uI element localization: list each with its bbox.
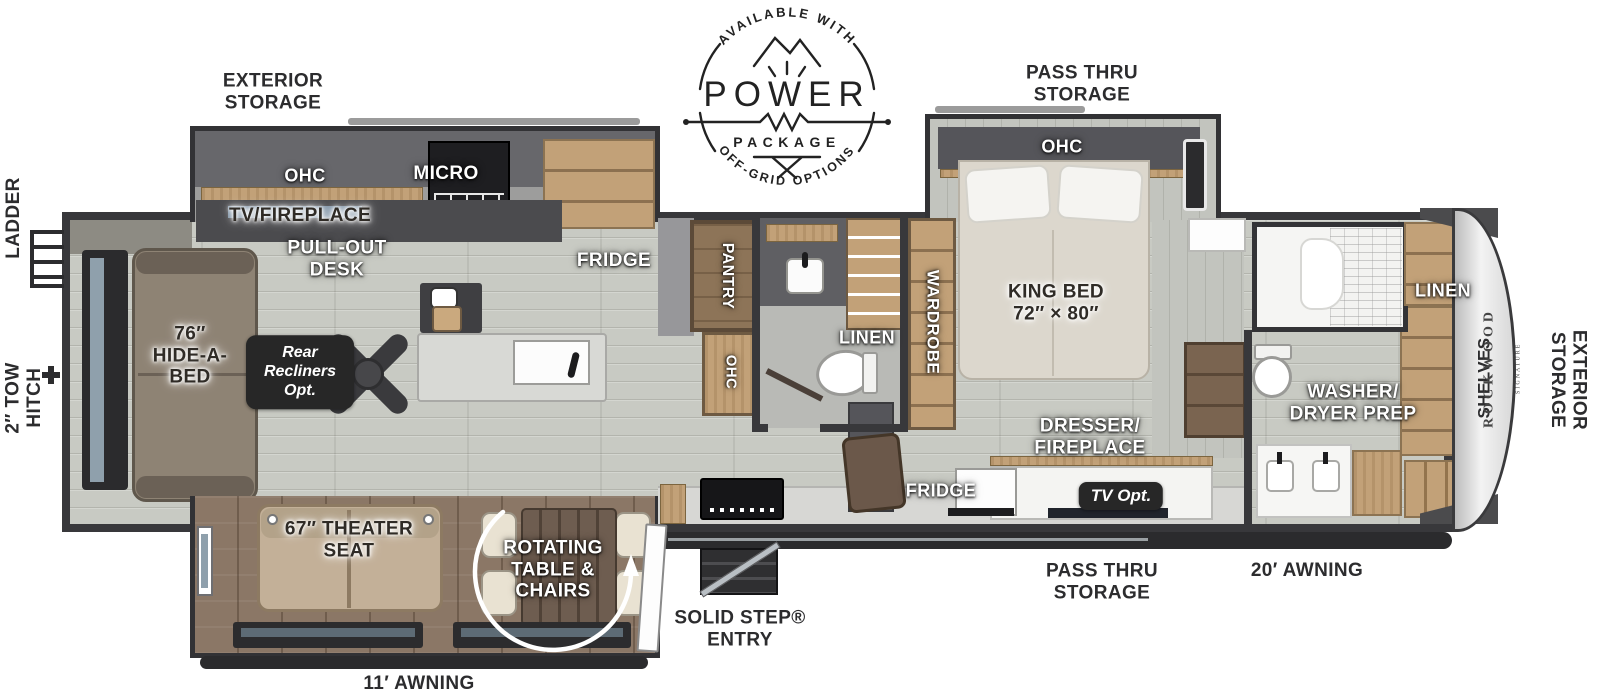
door-threshold-shelf	[660, 484, 686, 524]
label-theater-seat: 67″ THEATER SEAT	[285, 518, 413, 561]
label-tv-fireplace: TV/FIREPLACE	[229, 205, 371, 227]
entertainment-fridge-base	[948, 508, 1014, 516]
divider-dot-left	[683, 119, 689, 125]
mid-linen-closet	[846, 218, 902, 330]
bed-pillow-left	[964, 164, 1052, 224]
label-exterior-storage-front: EXTERIOR STORAGE	[1546, 330, 1589, 430]
sofa-armrest-top	[136, 252, 254, 274]
label-pass-thru-storage-top: PASS THRU STORAGE	[1026, 62, 1138, 105]
label-awning-11ft: 11′ AWNING	[363, 673, 474, 695]
sun-rays-icon	[769, 62, 805, 76]
label-solid-step-entry: SOLID STEP® ENTRY	[674, 607, 805, 650]
tow-hitch-icon-vertical	[48, 366, 54, 384]
label-rotating-table: ROTATING TABLE & CHAIRS	[503, 538, 603, 603]
mid-bath-wall-bottom-left	[752, 424, 768, 432]
ladder-icon	[30, 230, 64, 288]
floorplan-canvas: AVAILABLE WITH POWER PACKAGE OFF-GRID OP…	[0, 0, 1600, 698]
label-exterior-storage-top: EXTERIOR STORAGE	[223, 70, 323, 113]
label-hide-a-bed: 76″ HIDE-A- BED	[153, 324, 228, 389]
label-ladder: LADDER	[3, 177, 25, 259]
fan-hub	[352, 358, 384, 390]
label-ohc-bedroom: OHC	[1041, 137, 1082, 158]
hall-chair	[841, 432, 907, 514]
bedroom-upper-cabinet	[1188, 218, 1246, 252]
label-linen-front: LINEN	[1415, 281, 1471, 302]
logo-arc-lower-left	[700, 113, 715, 151]
bedroom-wardrobe-cabinet	[1184, 342, 1246, 438]
label-king-bed: KING BED 72″ × 80″	[1008, 281, 1104, 324]
logo-power-text: POWER	[703, 75, 870, 114]
rear-recliners-badge: Rear Recliners Opt.	[246, 335, 354, 409]
rockwood-brand-series: SIGNATURE	[1516, 308, 1523, 428]
island-sink	[513, 340, 590, 385]
label-wardrobe: WARDROBE	[923, 270, 942, 374]
label-dresser-fireplace: DRESSER/ FIREPLACE	[1034, 415, 1145, 458]
shower-bench	[1300, 238, 1344, 310]
label-pass-thru-storage-bottom: PASS THRU STORAGE	[1046, 560, 1158, 603]
desk-chair	[432, 306, 462, 332]
label-tow-hitch: 2″ TOW HITCH	[2, 362, 45, 433]
label-micro: MICRO	[413, 163, 478, 185]
bed-slide-window	[1183, 139, 1207, 211]
bed-pillow-right	[1056, 164, 1144, 224]
awning-20ft-highlight	[668, 538, 1148, 541]
rockwood-brand: ROCKWOOD SIGNATURE	[1463, 308, 1540, 428]
label-fridge: FRIDGE	[577, 250, 651, 272]
mid-bath-toilet-tank	[862, 352, 878, 394]
vanity-sink-right	[1312, 460, 1340, 492]
rear-window	[82, 250, 128, 490]
front-toilet-bowl	[1252, 356, 1292, 398]
slide-window-left-glass	[201, 534, 208, 588]
sofa-armrest-bottom	[136, 476, 254, 498]
vanity-wood-platform	[1352, 450, 1402, 516]
mid-bath-wall-bottom-right	[820, 424, 908, 432]
svg-text:AVAILABLE WITH: AVAILABLE WITH	[715, 4, 860, 47]
divider-dot-right	[885, 119, 891, 125]
label-pantry: PANTRY	[718, 243, 736, 309]
label-ohc-hall: OHC	[722, 355, 739, 390]
vanity-faucet-left	[1277, 452, 1282, 464]
bed-slide-topper	[935, 106, 1085, 113]
cupholder-left	[267, 514, 278, 525]
vanity-faucet-right	[1323, 452, 1328, 464]
mid-bath-shelf	[766, 224, 838, 242]
logo-divider-line	[686, 114, 888, 130]
label-awning-20ft: 20′ AWNING	[1251, 560, 1363, 582]
tv-opt-badge: TV Opt.	[1079, 482, 1163, 510]
rear-window-glass	[90, 258, 104, 482]
label-fridge-entertainment: FRIDGE	[906, 481, 976, 502]
label-ohc-kitchen: OHC	[284, 166, 325, 187]
vanity-sink-left	[1266, 460, 1294, 492]
kitchen-slide-topper	[348, 118, 640, 125]
griddle-dots	[710, 508, 774, 512]
logo-arc-top-text: AVAILABLE WITH	[715, 4, 860, 47]
mid-bath-wall-left	[752, 212, 760, 432]
mid-bath-wall-right	[900, 212, 908, 432]
label-pull-out-desk: PULL-OUT DESK	[287, 237, 386, 280]
logo-arc-lower-right	[859, 113, 874, 151]
cupholder-right	[423, 514, 434, 525]
label-washer-dryer: WASHER/ DRYER PREP	[1290, 381, 1417, 424]
rockwood-brand-name: ROCKWOOD	[1481, 308, 1497, 428]
hall-wall-band	[658, 218, 694, 336]
bedroom-bath-wall	[1244, 330, 1252, 524]
label-linen-bath: LINEN	[839, 328, 895, 349]
griddle	[700, 478, 784, 520]
logo-package-text: PACKAGE	[733, 134, 840, 150]
mid-bath-faucet-icon	[802, 252, 808, 268]
power-package-logo: AVAILABLE WITH POWER PACKAGE OFF-GRID OP…	[672, 4, 902, 200]
slide-window-bottom-left-glass	[241, 628, 415, 637]
